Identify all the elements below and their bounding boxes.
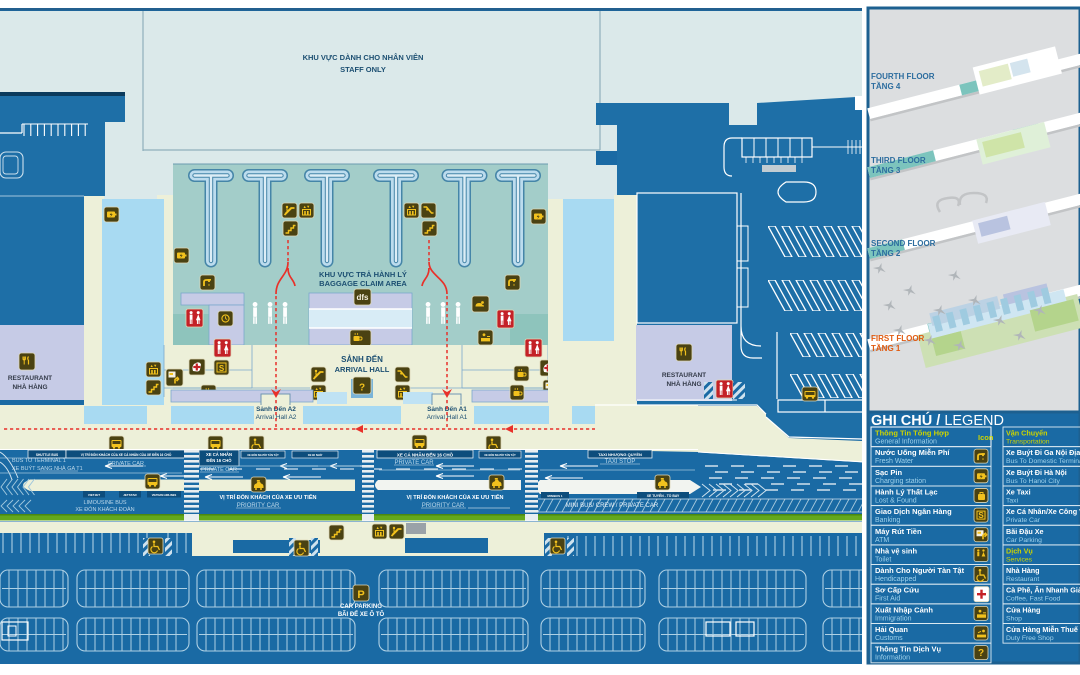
svg-text:TẦNG 3: TẦNG 3	[871, 165, 901, 175]
svg-text:S: S	[978, 511, 984, 520]
svg-text:Thông Tin Tổng Hợp: Thông Tin Tổng Hợp	[875, 429, 949, 438]
svg-text:XE TUYẾN - TỔ BAY: XE TUYẾN - TỔ BAY	[647, 493, 680, 498]
svg-text:Máy Rút Tiền: Máy Rút Tiền	[875, 527, 922, 536]
svg-text:ĐẾN 16 CHỖ: ĐẾN 16 CHỖ	[206, 458, 232, 463]
svg-text:CAR PARKING: CAR PARKING	[340, 604, 382, 610]
svg-text:MINIBUS 1: MINIBUS 1	[547, 494, 563, 498]
svg-text:Hành Lý Thất Lạc: Hành Lý Thất Lạc	[875, 487, 938, 496]
svg-text:Toilet: Toilet	[875, 556, 891, 563]
svg-text:Hải Quan: Hải Quan	[875, 625, 908, 634]
svg-text:XE CÁ NHÂN: XE CÁ NHÂN	[206, 452, 232, 457]
svg-text:dfs: dfs	[357, 293, 370, 302]
svg-text:Xe Cá Nhân/Xe Công V: Xe Cá Nhân/Xe Công V	[1006, 507, 1080, 516]
svg-text:Restaurant: Restaurant	[1006, 576, 1039, 583]
svg-text:Shop: Shop	[1006, 615, 1022, 622]
svg-text:TẦNG 2: TẦNG 2	[871, 248, 901, 258]
svg-text:GHI CHÚ / LEGEND: GHI CHÚ / LEGEND	[871, 411, 1004, 429]
svg-text:Bus To Domestic Termina: Bus To Domestic Termina	[1006, 458, 1080, 465]
svg-text:JETSTAR: JETSTAR	[123, 493, 137, 497]
svg-text:Duty Free Shop: Duty Free Shop	[1006, 635, 1054, 642]
svg-text:XE ĐI NHỜ: XE ĐI NHỜ	[308, 452, 323, 457]
svg-text:Nhà vệ sinh: Nhà vệ sinh	[875, 546, 918, 555]
svg-text:Nhà Hàng: Nhà Hàng	[1006, 566, 1040, 575]
svg-text:Sơ Cấp Cứu: Sơ Cấp Cứu	[875, 586, 920, 595]
svg-text:S: S	[219, 364, 225, 373]
svg-text:BAGGAGE CLAIM AREA: BAGGAGE CLAIM AREA	[319, 279, 407, 288]
svg-text:?: ?	[359, 382, 365, 393]
svg-text:RESTAURANT: RESTAURANT	[8, 375, 52, 382]
svg-text:TAXI NHƯỢNG QUYỀN: TAXI NHƯỢNG QUYỀN	[598, 452, 642, 457]
svg-text:NHÀ HÀNG: NHÀ HÀNG	[12, 382, 47, 391]
svg-text:Customs: Customs	[875, 635, 903, 642]
svg-text:Transportation: Transportation	[1006, 439, 1050, 446]
svg-text:Banking: Banking	[875, 517, 900, 524]
svg-text:Xe Buýt Đi Ga Nội Địa: Xe Buýt Đi Ga Nội Địa	[1006, 448, 1080, 457]
svg-text:Cửa Hàng: Cửa Hàng	[1006, 605, 1040, 614]
svg-text:VỊ TRÍ ĐÓN KHÁCH CỦA XE CÁ NHÂ: VỊ TRÍ ĐÓN KHÁCH CỦA XE CÁ NHÂN CỦA XE Đ…	[81, 452, 172, 457]
svg-text:Services: Services	[1006, 556, 1033, 563]
svg-text:Thông Tin Dịch Vụ: Thông Tin Dịch Vụ	[875, 645, 942, 654]
svg-text:Charging station: Charging station	[875, 478, 926, 485]
svg-text:SHUTTLE BUS: SHUTTLE BUS	[36, 453, 58, 457]
svg-text:Lost & Found: Lost & Found	[875, 497, 917, 504]
svg-text:Car Parking: Car Parking	[1006, 537, 1042, 544]
svg-text:ARRIVAL HALL: ARRIVAL HALL	[335, 365, 390, 374]
svg-text:XE CÁ NHÂN ĐẾN 16 CHỖ: XE CÁ NHÂN ĐẾN 16 CHỖ	[397, 452, 454, 458]
svg-text:P: P	[357, 589, 364, 601]
svg-text:Bãi Đậu Xe: Bãi Đậu Xe	[1006, 527, 1044, 536]
svg-text:XE ĐÓN KHÁCH ĐOÀN: XE ĐÓN KHÁCH ĐOÀN	[75, 506, 134, 513]
svg-text:Hendicapped: Hendicapped	[875, 576, 916, 583]
svg-text:STAFF ONLY: STAFF ONLY	[340, 65, 386, 74]
svg-text:Bus To Hanoi City: Bus To Hanoi City	[1006, 478, 1060, 485]
svg-text:TẦNG 1: TẦNG 1	[871, 343, 901, 353]
svg-text:?: ?	[978, 648, 984, 659]
svg-text:Fresh Water: Fresh Water	[875, 458, 914, 465]
svg-text:Cửa Hàng Miễn Thuế: Cửa Hàng Miễn Thuế	[1006, 625, 1078, 634]
svg-text:ATM: ATM	[875, 537, 889, 544]
svg-text:KHU VỰC TRẢ HÀNH LÝ: KHU VỰC TRẢ HÀNH LÝ	[319, 270, 407, 279]
svg-text:BÃI ĐỂ XE Ô TÔ: BÃI ĐỂ XE Ô TÔ	[338, 610, 385, 618]
svg-text:VIETNAM AIRLINES: VIETNAM AIRLINES	[152, 493, 177, 497]
svg-text:Taxi: Taxi	[1006, 497, 1019, 504]
svg-text:FOURTH FLOOR: FOURTH FLOOR	[871, 72, 935, 81]
svg-text:Dịch Vụ: Dịch Vụ	[1006, 546, 1033, 555]
svg-text:Dành Cho Người Tàn Tật: Dành Cho Người Tàn Tật	[875, 566, 965, 575]
svg-text:BUS TO TERMINAL 1: BUS TO TERMINAL 1	[12, 458, 66, 464]
svg-text:Information: Information	[875, 655, 910, 662]
svg-text:Giao Dịch Ngân Hàng: Giao Dịch Ngân Hàng	[875, 507, 952, 516]
svg-text:Icon: Icon	[978, 433, 994, 442]
svg-text:SẢNH ĐẾN: SẢNH ĐẾN	[341, 354, 383, 364]
svg-text:THIRD FLOOR: THIRD FLOOR	[871, 156, 926, 165]
svg-text:MINI BUS/ CREW / PRIVATE CAR: MINI BUS/ CREW / PRIVATE CAR	[566, 503, 659, 509]
svg-text:Cà Phê, Ăn Nhanh Giả: Cà Phê, Ăn Nhanh Giả	[1006, 586, 1080, 595]
svg-text:Coffee, Fast Food: Coffee, Fast Food	[1006, 596, 1060, 603]
svg-text:RESTAURANT: RESTAURANT	[662, 372, 706, 379]
svg-text:Private Car: Private Car	[1006, 517, 1041, 524]
svg-text:Xe Buýt Đi Hà Nội: Xe Buýt Đi Hà Nội	[1006, 468, 1067, 477]
svg-text:VỊ TRÍ ĐÓN KHÁCH CỦA XE ƯU TIÊ: VỊ TRÍ ĐÓN KHÁCH CỦA XE ƯU TIÊN	[407, 493, 504, 501]
svg-text:TẦNG 4: TẦNG 4	[871, 81, 901, 91]
svg-text:LIMOUSINE BUS: LIMOUSINE BUS	[83, 500, 126, 506]
svg-text:Vận Chuyển: Vận Chuyển	[1006, 429, 1048, 438]
svg-text:First Aid: First Aid	[875, 596, 900, 603]
svg-text:Sạc Pin: Sạc Pin	[875, 468, 903, 477]
svg-text:Nước Uống Miễn Phí: Nước Uống Miễn Phí	[875, 448, 950, 457]
svg-text:SECOND FLOOR: SECOND FLOOR	[871, 239, 936, 248]
svg-text:FIRST FLOOR: FIRST FLOOR	[871, 334, 925, 343]
svg-text:VIETJET: VIETJET	[88, 493, 100, 497]
svg-text:Xuất Nhập Cảnh: Xuất Nhập Cảnh	[875, 605, 933, 614]
svg-text:Immigration: Immigration	[875, 615, 912, 622]
svg-text:VỊ TRÍ ĐÓN KHÁCH CỦA XE ƯU TIÊ: VỊ TRÍ ĐÓN KHÁCH CỦA XE ƯU TIÊN	[220, 493, 317, 501]
svg-text:General Information: General Information	[875, 439, 937, 446]
svg-text:NHÀ HÀNG: NHÀ HÀNG	[666, 379, 701, 388]
svg-text:Xe Taxi: Xe Taxi	[1006, 487, 1031, 496]
svg-text:KHU VỰC DÀNH CHO NHÂN VIÊN: KHU VỰC DÀNH CHO NHÂN VIÊN	[303, 53, 424, 62]
